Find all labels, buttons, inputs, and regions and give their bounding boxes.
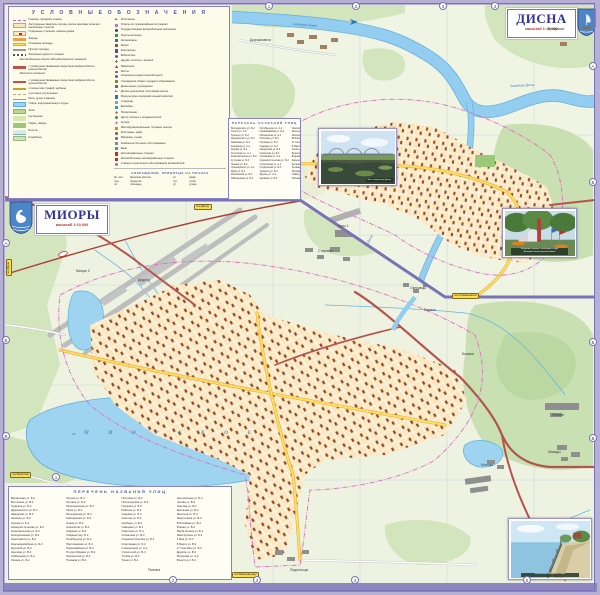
legend-item: Болота [13, 129, 110, 134]
legend-item: Местного значения: [13, 72, 110, 77]
legend-icon [115, 65, 118, 68]
legend-item: Центр гигиены и эпидемиологии [114, 116, 226, 120]
street-entry: Ленина ул. Б-2 [11, 559, 63, 563]
legend-item: Дошкольные учреждения [114, 85, 226, 89]
legend-swatch [13, 43, 26, 46]
legend-item: Магазины, рынки [114, 136, 226, 140]
legend-icon [115, 121, 118, 124]
miory-embankment-photo: Набережная Миорского озера [508, 518, 592, 580]
legend-icon [115, 95, 118, 98]
legend-item: Границы городских земель [13, 18, 110, 21]
map-sheet: У С Л О В Н Ы Е О Б О З Н А Ч Е Н И Я Гр… [0, 0, 600, 595]
legend-item: Стадионы [114, 100, 226, 104]
legend-swatch [13, 130, 26, 135]
legend-icon [115, 85, 118, 88]
legend-swatch [13, 54, 26, 56]
legend-icon [115, 111, 118, 114]
disna-street-list: ПЕРЕЧЕНЬ НАЗВАНИЙ УЛИЦ Володарского ул. … [228, 118, 301, 200]
street-entry: Полевая ул. В-4 [66, 559, 118, 563]
legend-item: Исполкомы [114, 18, 226, 22]
legend-swatch [13, 94, 26, 96]
legend-item: Автомобильные газозаправочные станции [114, 157, 226, 161]
street-entry: Набережная ул. Б-2 [231, 177, 257, 181]
grid-mark: 5 [523, 576, 531, 584]
legend-swatch [13, 58, 17, 63]
legend-item: Поликлиники [114, 111, 226, 115]
legend-item: Леса [13, 109, 110, 114]
miory-title: МИОРЫ [37, 208, 107, 222]
legend-swatch [13, 109, 26, 114]
legend-icon [115, 39, 118, 42]
legend-item: Комбинаты бытового обслуживания [114, 142, 226, 146]
legend-item: Учреждения общего среднего образования [114, 80, 226, 84]
legend-icon [115, 152, 118, 155]
legend-icon [115, 90, 118, 93]
legend-item: Отдельные строения, номера домов [13, 30, 110, 35]
legend-swatch [13, 49, 26, 52]
legend-swatch [13, 23, 26, 28]
legend-item: Заезды [13, 37, 110, 41]
legend-icon [115, 127, 118, 130]
legend-swatch [13, 136, 26, 141]
embankment-photo-caption: Набережная Миорского озера [521, 573, 579, 577]
legend-item: с усовершенствованным покрытием (асфальт… [13, 79, 110, 85]
legend-swatch [13, 20, 26, 21]
legend-title: У С Л О В Н Ы Е О Б О З Н А Ч Е Н И Я [13, 10, 226, 16]
legend-icon [115, 142, 118, 145]
legend-item: Отделы по чрезвычайным ситуациям [114, 23, 226, 27]
legend-swatch [13, 31, 26, 36]
legend-icon [115, 101, 118, 104]
legend-item: Бани [114, 147, 226, 151]
legend-icon [115, 137, 118, 140]
legend-item: Мосты [114, 70, 226, 73]
abbreviation: пл.площадь [114, 183, 167, 187]
legend-icon [115, 80, 118, 83]
legend-swatch [13, 66, 26, 69]
legend-item: Государственная автомобильная инспекция [114, 28, 226, 32]
grid-mark: В [589, 434, 597, 442]
legend-item: Физкультурно-оздоровительный комплекс [114, 95, 226, 99]
grid-mark: 1 [265, 2, 273, 10]
legend-icon [115, 34, 118, 37]
legend-item: Автозаправочные станции [114, 152, 226, 156]
legend-item: Пункты милиции [114, 34, 226, 38]
grid-mark: 2 [169, 576, 177, 584]
legend-icon [115, 29, 118, 32]
legend-icon [115, 75, 118, 78]
street-entry: Полевая ул. А-1 [292, 177, 301, 181]
legend-icon [115, 106, 118, 109]
legend-icon [115, 55, 118, 58]
legend-item: Музеи [114, 44, 226, 48]
legend-item: Железные дороги и станции [13, 53, 110, 57]
grid-mark: В [2, 432, 10, 440]
legend-icon [115, 24, 118, 27]
miory-scale: масштаб 1:10 000 [37, 223, 107, 227]
legend-item: Кладбища [13, 136, 110, 141]
disna-title: ДИСНА [508, 12, 575, 26]
legend-item: Озёра, водохранилища и пруды [13, 102, 110, 107]
legend-item: Социально-педагогический центр [114, 74, 226, 78]
legend-swatch [13, 116, 26, 121]
grid-mark: 3 [253, 576, 261, 584]
legend-item: Реки, ручьи и каналы [13, 97, 110, 100]
street-entry: Юности ул. В-4 [177, 559, 229, 563]
legend-left-column: Границы городских земель Застроенные ква… [13, 18, 110, 187]
legend-swatch [13, 123, 26, 128]
legend-item: Основные проезды [13, 42, 110, 46]
grid-mark: Б [589, 338, 597, 346]
legend-item: Автовокзалы [114, 39, 226, 43]
miory-title-block: МИОРЫ масштаб 1:10 000 [36, 205, 108, 234]
memorial-photo-caption: Мемориал воинам, погибшим в годы Великой… [511, 248, 568, 255]
grid-mark: Б [589, 178, 597, 186]
miory-memorial-photo: Мемориал воинам, погибшим в годы Великой… [502, 208, 577, 258]
legend-item: Застроенные кварталы города, жилые масси… [13, 23, 110, 29]
legend-icon [115, 132, 118, 135]
legend-icon [115, 18, 118, 21]
legend-icon [115, 163, 118, 166]
grid-mark: Б [2, 336, 10, 344]
legend-icon [115, 158, 118, 161]
legend-swatch [13, 88, 26, 90]
legend-icon [115, 147, 118, 150]
legend-item: Автомобильные дороги Республиканского зн… [13, 58, 110, 63]
street-entry: Тихая ул. В-4 [122, 559, 174, 563]
legend-swatch [13, 99, 26, 101]
legend-swatch [13, 38, 26, 41]
legend-item: Парки, скверы [13, 122, 110, 127]
disna-bridge-photo: Мост через реку Дисну [318, 128, 397, 186]
legend-item: Кинотеатры [114, 49, 226, 53]
disna-title-block: ДИСНА масштаб 1:10 000 [507, 9, 576, 38]
legend-panel: У С Л О В Н Ы Е О Б О З Н А Ч Е Н И Я Гр… [8, 6, 230, 199]
legend-item: Церкви, костёлы, часовни [114, 59, 226, 63]
legend-item: Библиотеки [114, 54, 226, 58]
legend-item: Многофункциональные торговые центры [114, 126, 226, 130]
grid-mark: 3 [439, 2, 447, 10]
legend-icon [115, 44, 118, 47]
abbreviations-section: СОКРАЩЕНИЯ, ПРИНЯТЫЕ НА ПЛАНАХ бр. мог.б… [114, 168, 226, 187]
grid-mark: 1 [52, 473, 60, 481]
legend-item: Кустарники [13, 115, 110, 120]
legend-right-column: Исполкомы Отделы по чрезвычайным ситуаци… [114, 18, 226, 187]
legend-item: грунтовые улучшенные [13, 92, 110, 95]
bridge-photo-caption: Мост через реку Дисну [366, 178, 393, 182]
grid-mark: А [589, 62, 597, 70]
legend-swatch [13, 81, 26, 83]
legend-item: Детско-юношеская спортивная школа [114, 90, 226, 94]
street-entry: Чапаева ул. Б-2 [260, 177, 289, 181]
grid-mark: 2 [352, 2, 360, 10]
miory-street-list: ПЕРЕЧЕНЬ НАЗВАНИЙ УЛИЦ Вокзальная ул. Б-… [8, 486, 232, 580]
miory-coat-of-arms [9, 201, 33, 234]
legend-item: Бассейны [114, 105, 226, 109]
legend-item: Прочие проезды [13, 48, 110, 52]
legend-icon [115, 116, 118, 119]
legend-icon [115, 49, 118, 52]
legend-item: Рестораны, кафе [114, 131, 226, 135]
legend-swatch [13, 73, 17, 78]
grid-mark: 4 [491, 2, 499, 10]
bottom-band [3, 583, 597, 592]
legend-item: с покрытием (гравий, щебень) [13, 87, 110, 90]
abbreviation: ул.улица [173, 183, 226, 187]
legend-item: Аптеки [114, 121, 226, 125]
legend-item: Памятники [114, 65, 226, 69]
legend-icon [115, 71, 118, 73]
legend-swatch [13, 102, 26, 107]
legend-item: с усовершенствованным покрытием (асфальт… [13, 65, 110, 71]
disna-coat-of-arms [577, 8, 596, 36]
disna-scale: масштаб 1:10 000 [508, 27, 575, 31]
legend-icon [115, 60, 118, 63]
legend-item: Станции технического обслуживания автомо… [114, 162, 226, 166]
grid-mark: А [2, 239, 10, 247]
grid-mark: 4 [351, 576, 359, 584]
